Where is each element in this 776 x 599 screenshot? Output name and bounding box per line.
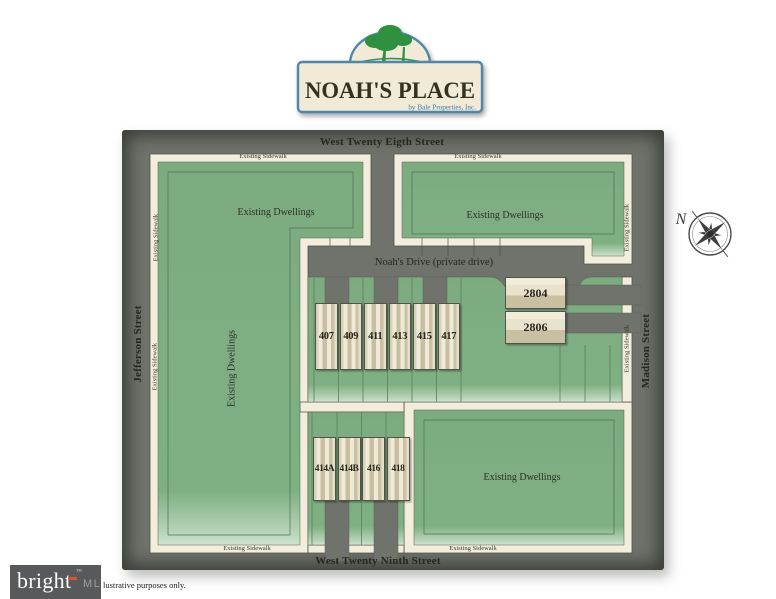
existing-sidewalk-label-e1: Existing Sidewalk [623, 193, 630, 263]
building-2806: 2806 [505, 311, 566, 344]
townhouse-414B: 414B [338, 437, 361, 501]
building-2804: 2804 [505, 277, 566, 309]
townhouse-414A: 414A [313, 437, 336, 501]
townhouse-415: 415 [413, 303, 436, 370]
lot-number: 415 [417, 331, 432, 342]
lot-number: 416 [367, 464, 380, 474]
lot-number: 2806 [524, 320, 548, 335]
lot-number: 407 [319, 331, 334, 342]
townhouse-413: 413 [389, 303, 412, 370]
townhouse-417: 417 [438, 303, 461, 370]
bright-mls-logo: bright ™ MLS [10, 565, 101, 599]
street-label-east: Madison Street [640, 291, 652, 411]
lot-number: 413 [392, 331, 407, 342]
logo-title: NOAH'S PLACE [305, 78, 475, 103]
logo-sign: NOAH'S PLACE by Bale Properties, Inc. [290, 14, 490, 126]
townhouse-416: 416 [362, 437, 385, 501]
existing-sidewalk-label-tl: Existing Sidewalk [213, 153, 313, 160]
existing-sidewalk-label-br: Existing Sidewalk [423, 545, 523, 552]
disclaimer-text: lustrative purposes only. [103, 580, 186, 590]
brand-mls-text: MLS [83, 578, 101, 590]
brand-bright-text: bright [17, 568, 71, 594]
logo-subtitle: by Bale Properties, Inc. [408, 104, 476, 112]
private-drive-label: Noah's Drive (private drive) [334, 257, 534, 269]
townhouse-409: 409 [340, 303, 363, 370]
existing-sidewalk-label-w2: Existing Sidewalk [151, 332, 158, 402]
existing-sidewalk-label-e2: Existing Sidewalk [623, 314, 630, 384]
lot-number: 417 [441, 331, 456, 342]
site-plan-page: NOAH'S PLACE by Bale Properties, Inc. [0, 0, 776, 599]
existing-sidewalk-label-w1: Existing Sidewalk [152, 203, 159, 273]
existing-dwellings-label-w: Existing Dwellings [227, 299, 238, 439]
existing-sidewalk-label-tr: Existing Sidewalk [428, 153, 528, 160]
townhouse-407: 407 [315, 303, 338, 370]
street-label-south: West Twenty Ninth Street [278, 555, 478, 567]
street-label-north: West Twenty Eigth Street [282, 136, 482, 148]
brand-t-cross-accent [68, 577, 77, 580]
townhouse-411: 411 [364, 303, 387, 370]
lot-number: 418 [391, 464, 404, 474]
existing-dwellings-label-nw: Existing Dwellings [176, 207, 376, 218]
lot-number: 414A [315, 464, 335, 474]
existing-dwellings-label-se: Existing Dwellings [422, 472, 622, 483]
existing-dwellings-label-ne: Existing Dwellings [405, 210, 605, 221]
brand-trademark: ™ [76, 569, 82, 575]
lot-number: 2804 [524, 286, 548, 301]
existing-sidewalk-label-bl: Existing Sidewalk [197, 545, 297, 552]
townhouse-418: 418 [387, 437, 410, 501]
lot-number: 414B [340, 464, 359, 474]
lot-number: 409 [343, 331, 358, 342]
lot-number: 411 [368, 331, 382, 342]
compass-rose-icon [668, 196, 752, 272]
compass-north-label: N [672, 211, 690, 229]
street-label-west: Jefferson Street [132, 284, 144, 404]
